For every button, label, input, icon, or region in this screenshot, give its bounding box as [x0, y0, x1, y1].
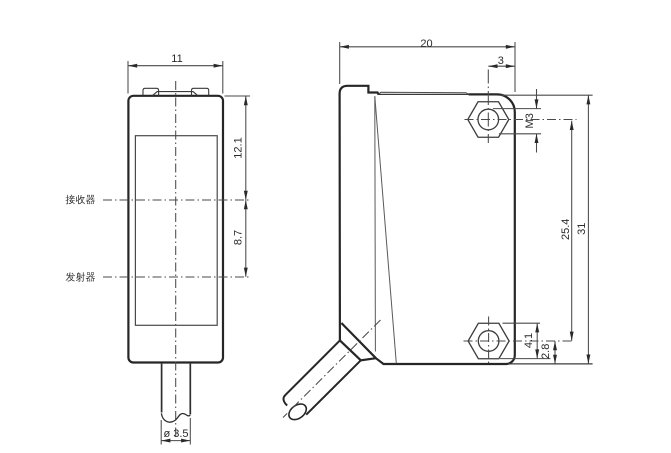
svg-text:20: 20: [420, 38, 432, 50]
svg-text:M3: M3: [524, 113, 536, 128]
svg-text:8.7: 8.7: [233, 230, 245, 245]
svg-text:31: 31: [576, 223, 588, 235]
svg-text:3: 3: [498, 55, 504, 67]
svg-text:12.1: 12.1: [233, 137, 245, 158]
svg-text:ø 3.5: ø 3.5: [163, 428, 188, 440]
svg-text:11: 11: [171, 53, 182, 65]
svg-text:2.8: 2.8: [540, 344, 552, 359]
svg-text:25.4: 25.4: [560, 219, 572, 240]
svg-text:4.1: 4.1: [523, 333, 535, 348]
